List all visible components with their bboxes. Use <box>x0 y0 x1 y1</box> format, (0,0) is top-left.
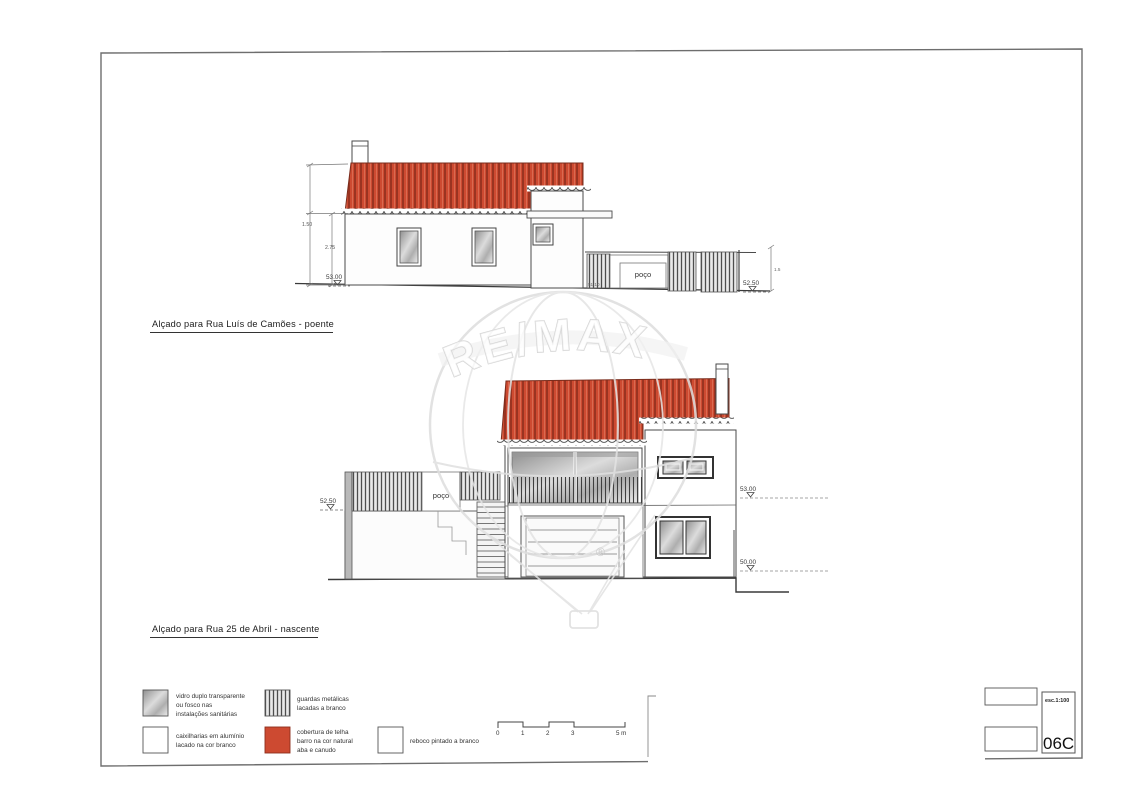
legend-label: caixilharias em alumínio <box>176 733 245 740</box>
gate-level-label: 51.10 <box>588 282 600 287</box>
wall-pillar <box>345 472 352 579</box>
scale-tick-label: 3 <box>571 730 575 737</box>
small-window <box>533 224 553 245</box>
window-pair-ground <box>656 517 710 558</box>
scale-tick-label: 1 <box>521 730 525 737</box>
legend-label: cobertura de telha <box>297 729 349 736</box>
chimney <box>352 141 368 164</box>
legend-label: barro na cor natural <box>297 738 353 745</box>
chimney <box>716 364 728 414</box>
metal-railing <box>701 252 737 292</box>
elevation-title: Alçado para Rua Luís de Camões - poente <box>152 319 334 329</box>
main-wall <box>345 214 531 285</box>
scale-tick-label: 0 <box>496 730 500 737</box>
svg-text:50.00: 50.00 <box>740 559 756 566</box>
legend-swatch-white <box>143 727 168 753</box>
legend-label: instalações sanitárias <box>176 711 237 718</box>
balcony-glazing <box>508 448 642 507</box>
balcony-railing <box>508 477 642 503</box>
registered-mark: ® <box>596 545 605 559</box>
metal-railing <box>352 472 422 511</box>
elevation-title: Alçado para Rua 25 de Abril - nascente <box>152 624 319 634</box>
legend-label: lacado na cor branco <box>176 742 236 749</box>
title-block-field <box>985 727 1037 751</box>
scale-tick-label: 2 <box>546 730 550 737</box>
scale-label: esc.1:100 <box>1045 698 1069 704</box>
dim-label: 1.5 <box>774 267 781 272</box>
legend-swatch-white <box>378 727 403 753</box>
title-block-field <box>985 688 1037 705</box>
roof-eave-scallop <box>497 440 647 446</box>
legend-swatch-glass <box>143 690 168 716</box>
canopy-slab <box>527 211 612 218</box>
architectural-drawing-sheet: 1.50 2.75 53.00 poço 51.10 52.50 <box>0 0 1132 800</box>
legend-label: ou fosco nas <box>176 702 212 709</box>
legend-swatch-stripes <box>265 690 290 716</box>
window <box>472 228 496 266</box>
garage-door <box>508 505 643 578</box>
svg-text:53.00: 53.00 <box>326 274 342 281</box>
svg-text:52.50: 52.50 <box>320 498 336 505</box>
legend-label: lacadas a branco <box>297 705 346 712</box>
svg-text:52.50: 52.50 <box>743 280 759 287</box>
dim-label: 2.75 <box>325 245 335 251</box>
svg-text:53.00: 53.00 <box>740 486 756 493</box>
legend-swatch-red <box>265 727 290 753</box>
scale-tick-label: 5 m <box>616 730 626 737</box>
boundary-fence: poço 51.10 <box>585 250 756 292</box>
legend-label: reboco pintado a branco <box>410 738 479 745</box>
legend-label: aba e canudo <box>297 747 336 754</box>
metal-railing <box>668 252 696 291</box>
blank-cover-area <box>648 640 985 800</box>
window <box>397 228 421 266</box>
legend-label: vidro duplo transparente <box>176 693 245 700</box>
roof-eave-scallop <box>639 418 734 424</box>
metal-railing <box>460 472 500 500</box>
dim-label: 1.50 <box>302 222 312 228</box>
drawing-number: 06C <box>1043 734 1074 753</box>
well-label: poço <box>635 270 651 279</box>
well-label: poço <box>433 491 449 500</box>
legend-label: guardas metálicas <box>297 696 349 703</box>
